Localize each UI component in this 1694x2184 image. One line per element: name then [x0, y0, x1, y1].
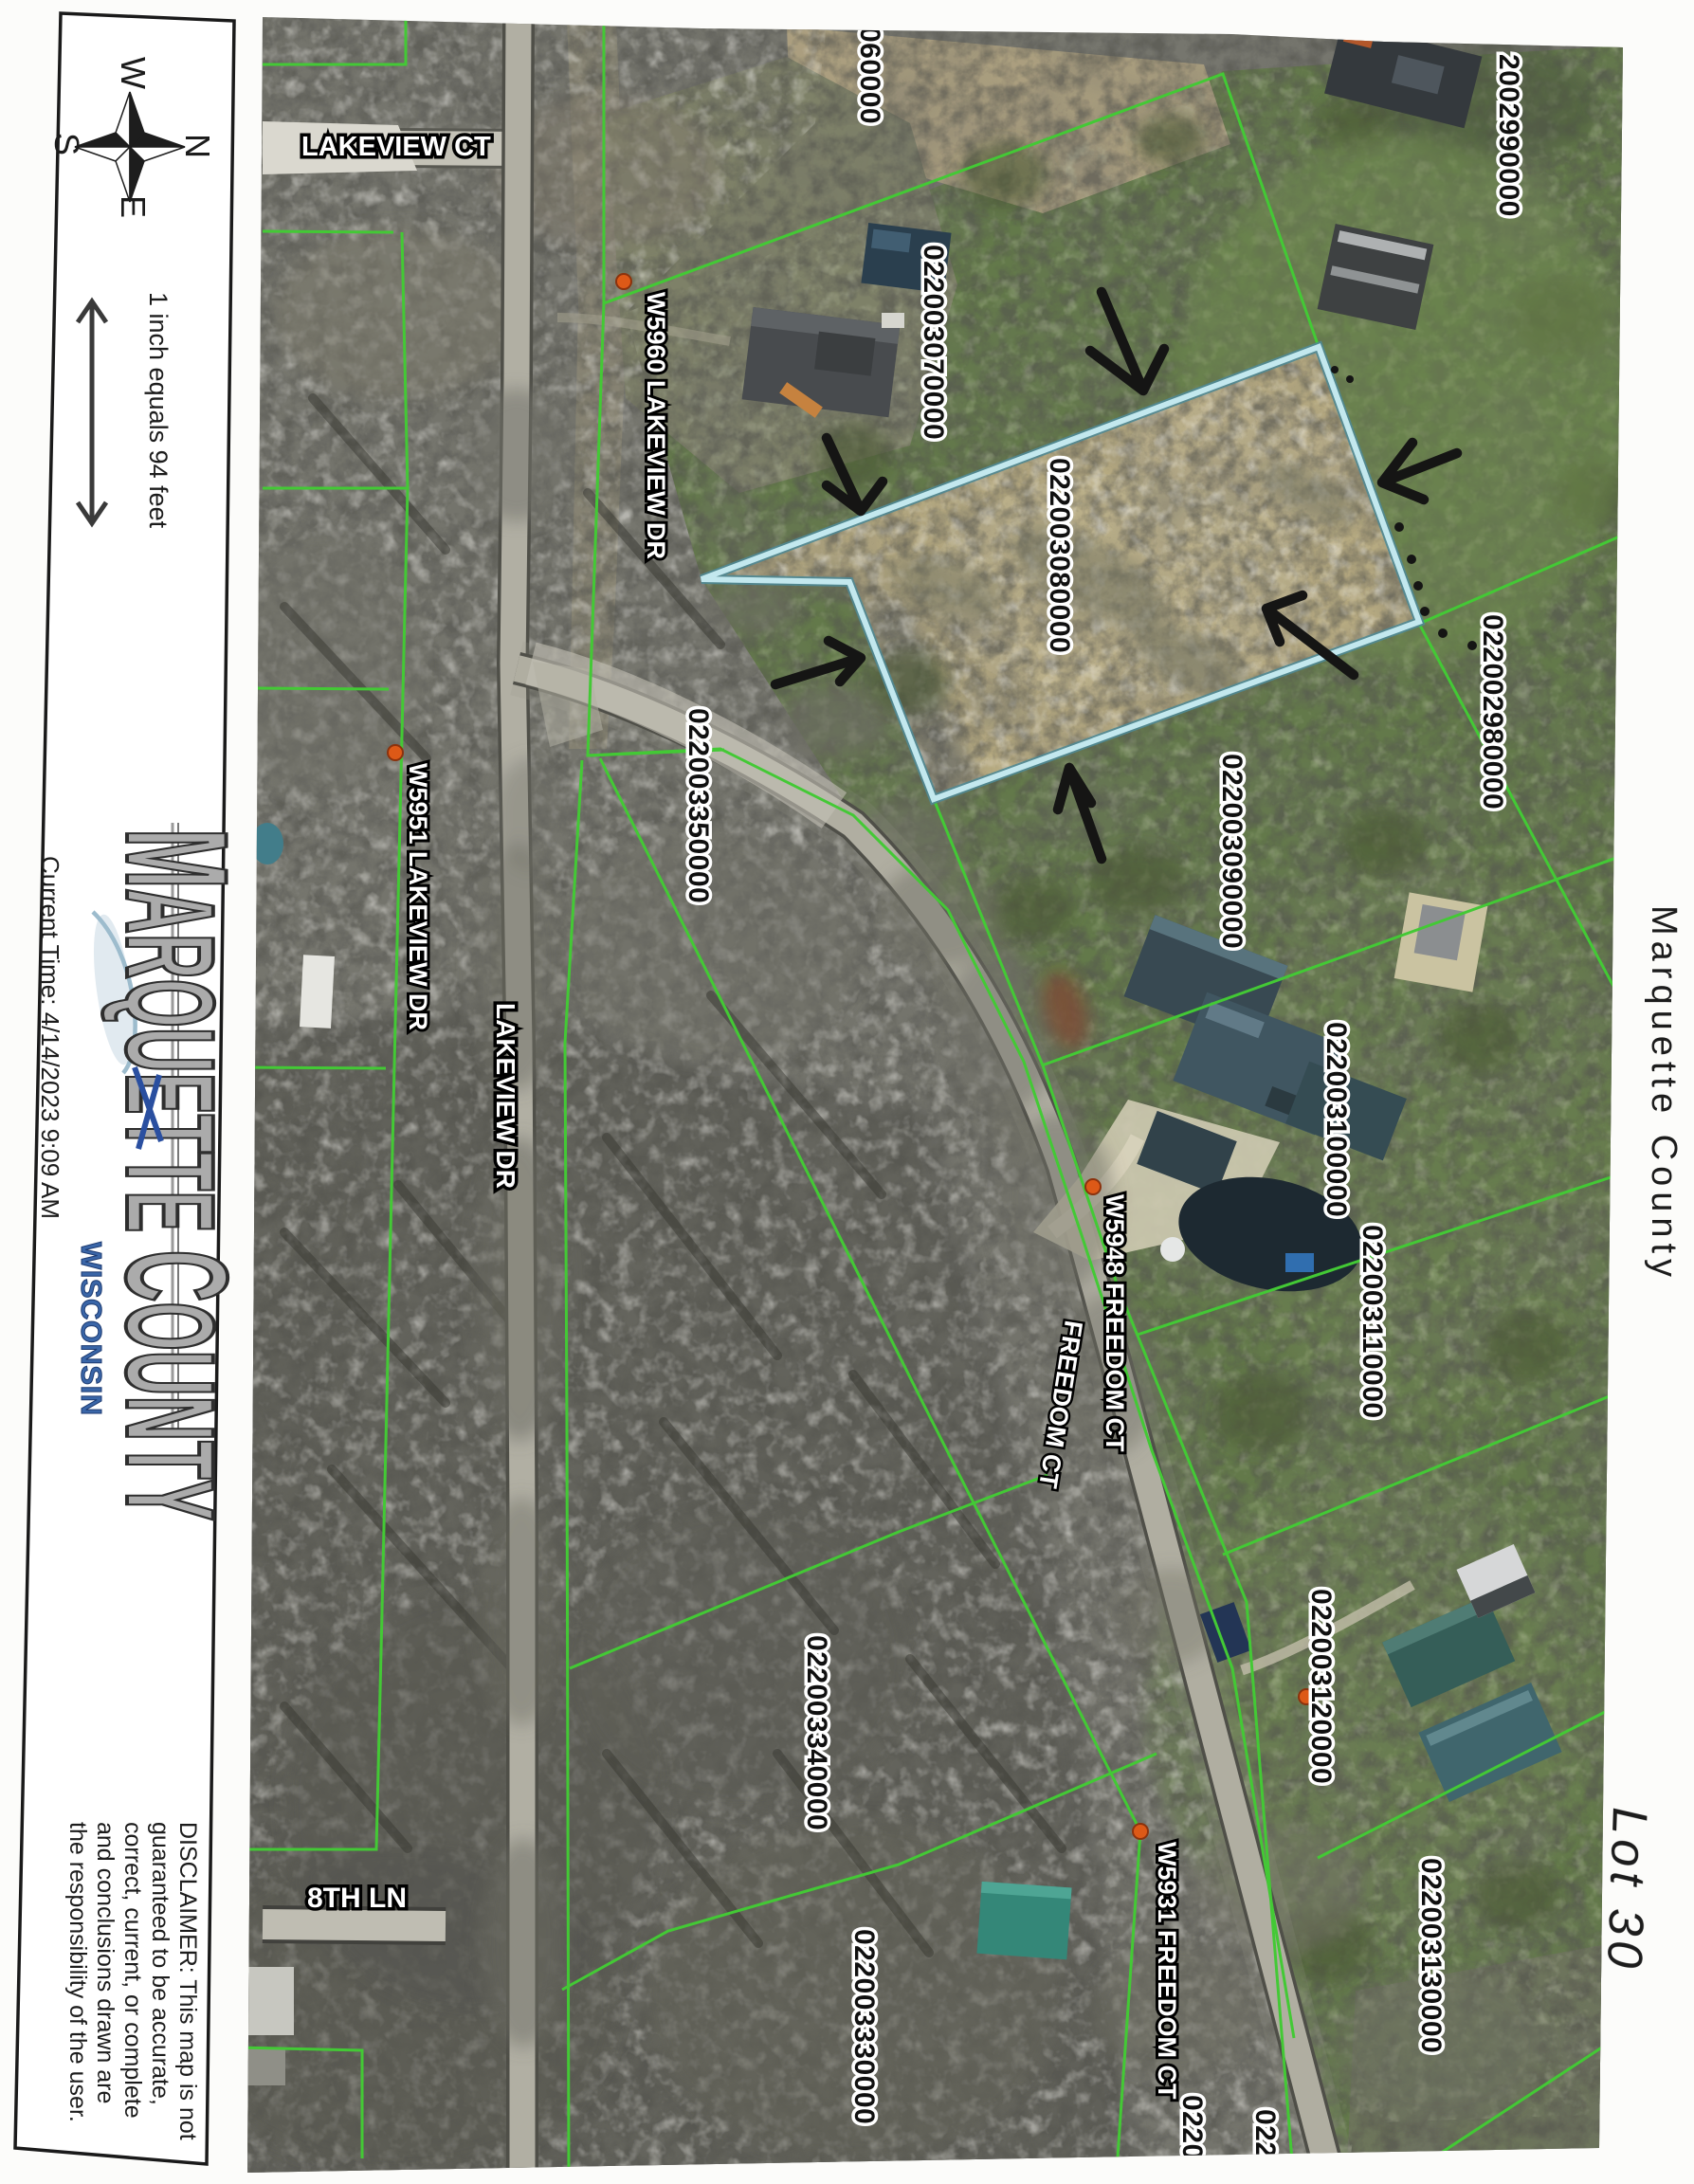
svg-text:1 inch equals 94 feet: 1 inch equals 94 feet	[144, 292, 173, 529]
svg-text:W5960 LAKEVIEW DR: W5960 LAKEVIEW DR	[642, 292, 670, 559]
svg-text:8TH LN: 8TH LN	[307, 1883, 407, 1914]
svg-text:WISCONSIN: WISCONSIN	[75, 1242, 108, 1416]
svg-text:N: N	[178, 134, 217, 158]
svg-text:Current Time: 4/14/2023 9:09 A: Current Time: 4/14/2023 9:09 AM	[36, 856, 64, 1219]
svg-text:Lot 30: Lot 30	[1596, 1807, 1657, 1974]
svg-text:W5951 LAKEVIEW DR: W5951 LAKEVIEW DR	[404, 763, 432, 1030]
svg-text:S: S	[47, 133, 86, 155]
svg-text:022003100000: 022003100000	[1321, 1022, 1352, 1217]
svg-text:DISCLAIMER: This map is not: DISCLAIMER: This map is not	[174, 1822, 201, 2140]
svg-text:022003090000: 022003090000	[1216, 754, 1248, 949]
svg-text:022003070000: 022003070000	[918, 245, 949, 440]
svg-text:022003080000: 022003080000	[1044, 458, 1075, 653]
svg-text:022003350000: 022003350000	[683, 708, 714, 903]
svg-text:W5931 FREEDOM CT: W5931 FREEDOM CT	[1153, 1842, 1181, 2100]
svg-text:022002980000: 022002980000	[1477, 614, 1508, 810]
svg-text:the responsibility of the user: the responsibility of the user.	[64, 1822, 91, 2122]
svg-text:MARQUETTE COUNTY: MARQUETTE COUNTY	[96, 828, 256, 1520]
svg-text:022003110000: 022003110000	[1357, 1225, 1388, 1419]
svg-text:guaranteed to be accurate,: guaranteed to be accurate,	[147, 1822, 173, 2105]
svg-text:060000: 060000	[854, 27, 885, 124]
svg-text:LAKEVIEW DR: LAKEVIEW DR	[491, 1003, 520, 1189]
svg-text:022003340000: 022003340000	[801, 1635, 832, 1830]
svg-text:and conclusions drawn are: and conclusions drawn are	[92, 1822, 118, 2103]
svg-text:E: E	[114, 195, 153, 218]
svg-text:022003130000: 022003130000	[1415, 1858, 1447, 2053]
svg-text:2002990000: 2002990000	[1493, 54, 1524, 217]
svg-text:W5948 FREEDOM CT: W5948 FREEDOM CT	[1101, 1194, 1129, 1452]
svg-text:Marquette County: Marquette County	[1644, 905, 1684, 1283]
svg-text:022003330000: 022003330000	[848, 1929, 880, 2124]
svg-text:correct, current, or complete: correct, current, or complete	[119, 1822, 146, 2119]
svg-text:022003120000: 022003120000	[1305, 1589, 1337, 1784]
svg-text:LAKEVIEW CT: LAKEVIEW CT	[301, 132, 491, 162]
svg-text:W: W	[114, 57, 153, 89]
